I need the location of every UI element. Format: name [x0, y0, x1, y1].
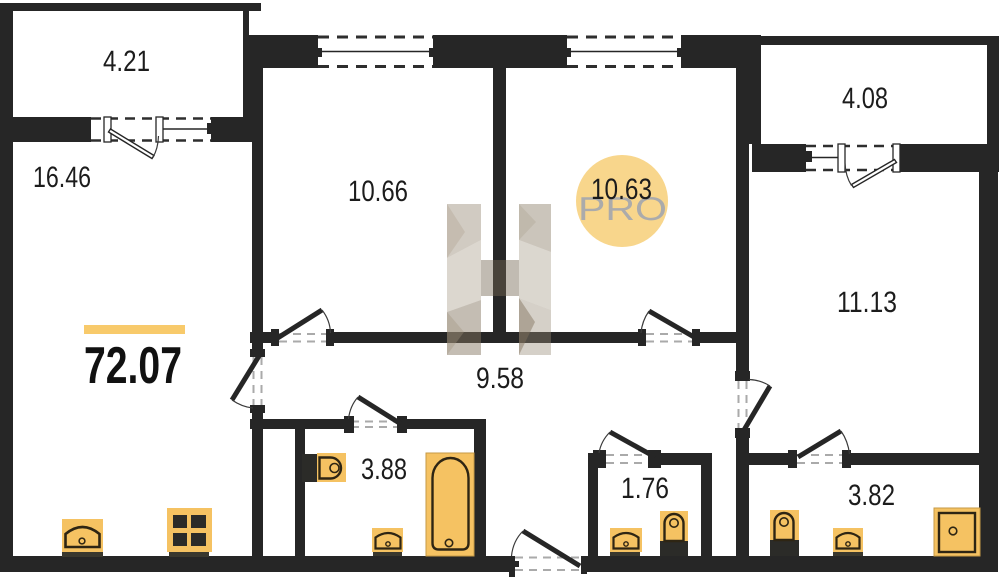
svg-text:10.66: 10.66	[348, 175, 408, 208]
svg-text:4.08: 4.08	[842, 82, 888, 115]
svg-text:1.76: 1.76	[621, 472, 669, 505]
svg-text:16.46: 16.46	[33, 161, 91, 194]
svg-text:4.21: 4.21	[103, 45, 150, 78]
svg-text:3.88: 3.88	[361, 453, 407, 486]
svg-text:11.13: 11.13	[837, 286, 897, 319]
svg-text:10.63: 10.63	[591, 173, 652, 206]
svg-text:3.82: 3.82	[848, 479, 895, 512]
svg-text:9.58: 9.58	[476, 362, 524, 395]
svg-text:72.07: 72.07	[84, 337, 182, 395]
